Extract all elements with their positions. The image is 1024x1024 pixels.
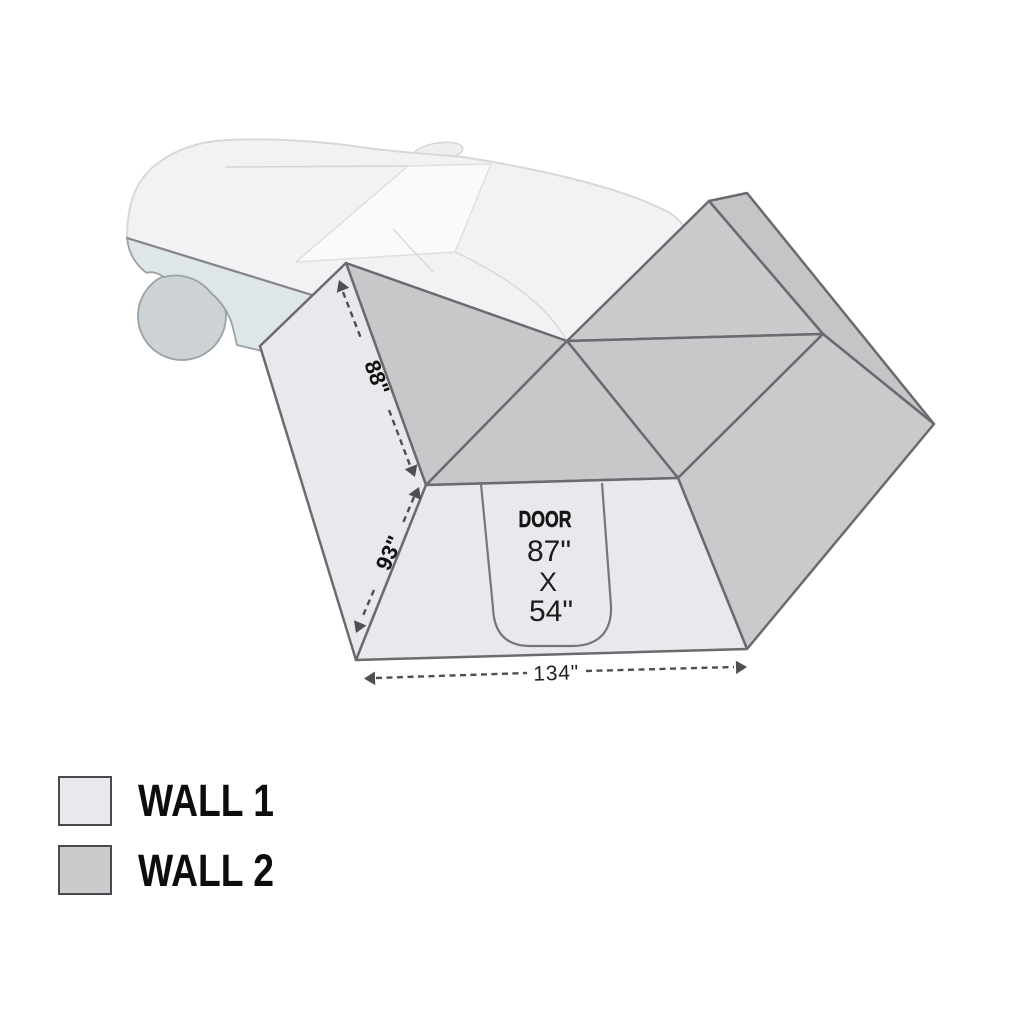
- svg-text:WALL 1: WALL 1: [138, 775, 274, 826]
- svg-text:134": 134": [533, 661, 579, 685]
- svg-text:54": 54": [529, 595, 573, 628]
- svg-text:87": 87": [527, 535, 571, 568]
- svg-text:X: X: [539, 567, 557, 597]
- svg-text:DOOR: DOOR: [519, 506, 572, 532]
- svg-text:WALL 2: WALL 2: [138, 845, 274, 896]
